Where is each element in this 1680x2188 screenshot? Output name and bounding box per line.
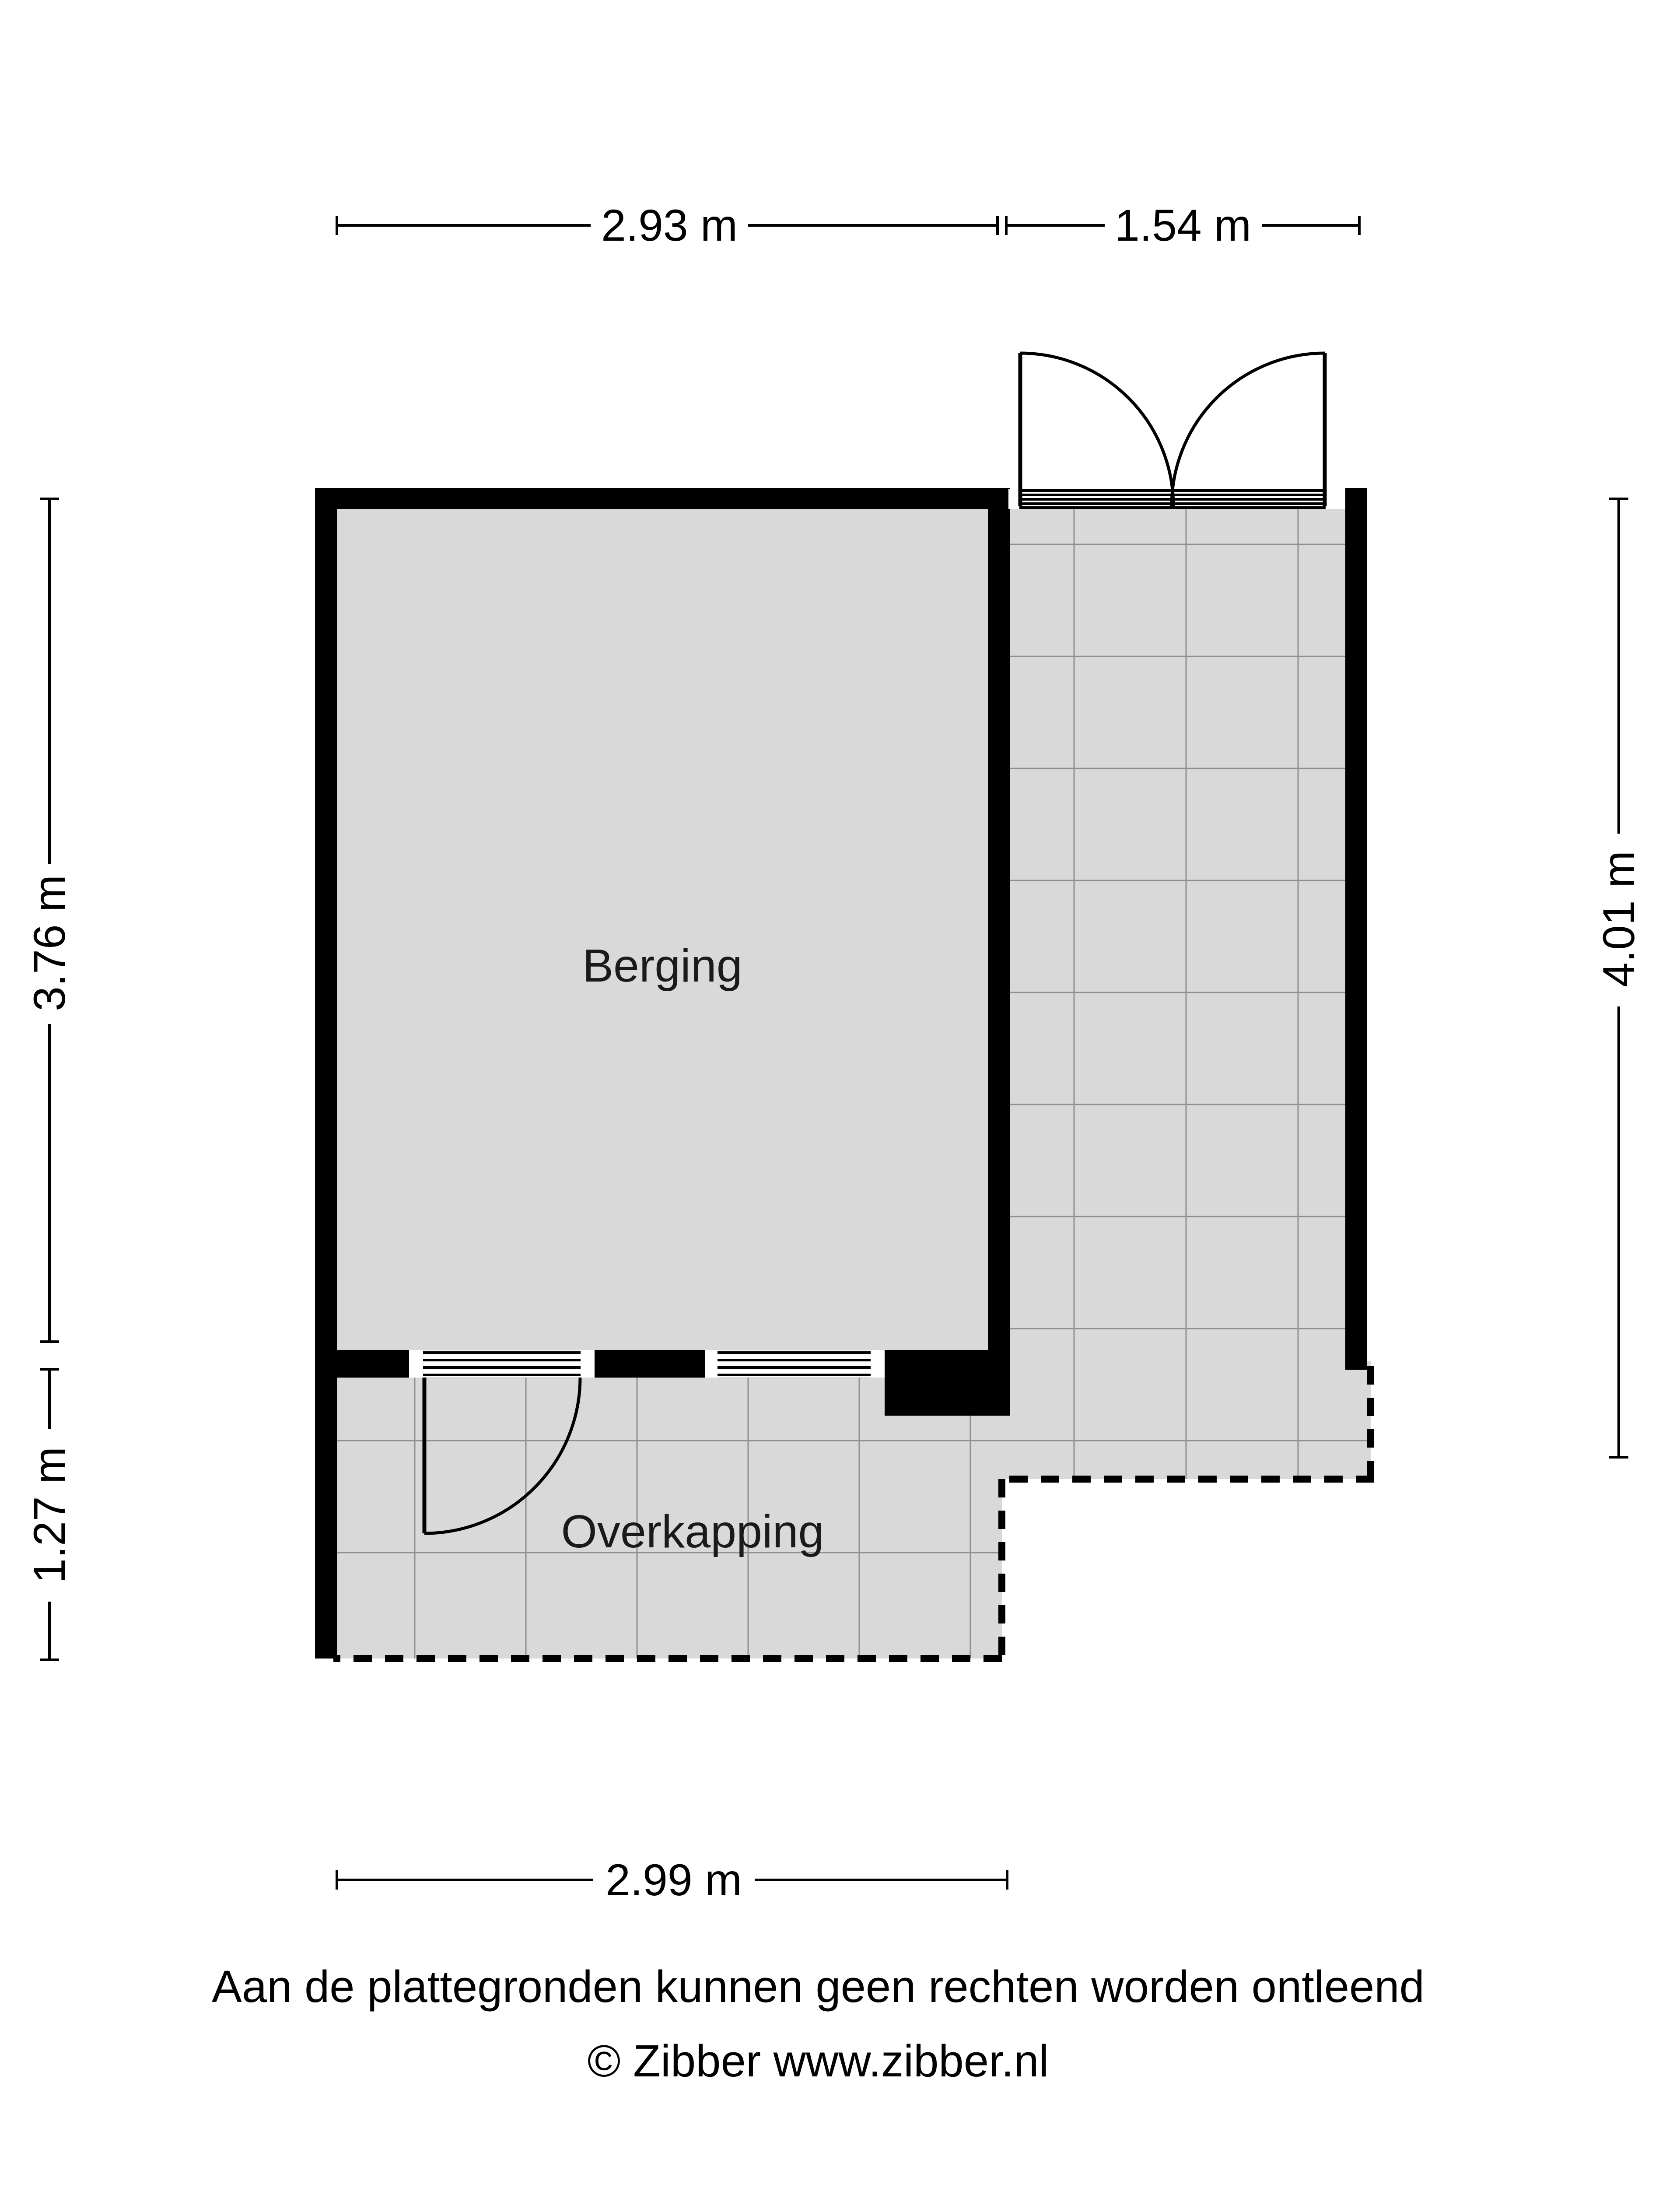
dimension-bottom: 2.99 m (337, 1855, 1007, 1905)
dimension-right: 4.01 m (1594, 499, 1644, 1457)
door-swing-arc-right (1172, 353, 1325, 506)
dimension-label: 3.76 m (24, 875, 74, 1011)
dimension-left-lower: 1.27 m (24, 1369, 74, 1660)
floorplan-svg: Berging Overkapping 2.93 m 1.54 m 3.76 m… (0, 0, 1680, 2188)
wall-top (315, 488, 1008, 509)
jamb-gap (581, 1350, 595, 1378)
double-door-sill (1008, 489, 1345, 509)
dimension-label: 1.54 m (1115, 200, 1251, 250)
wall-berging-right (988, 488, 1010, 1416)
floorplan-page: Berging Overkapping 2.93 m 1.54 m 3.76 m… (0, 0, 1680, 2188)
wall-corridor-right (1345, 488, 1367, 1370)
jamb-gap (409, 1350, 423, 1378)
dimension-top-left: 2.93 m (337, 200, 997, 250)
jamb-gap (705, 1350, 717, 1378)
dimension-label: 2.99 m (605, 1855, 742, 1905)
wall-left (315, 488, 337, 1659)
footer-disclaimer: Aan de plattegronden kunnen geen rechten… (212, 1961, 1424, 2012)
dimension-label: 2.93 m (601, 200, 738, 250)
room-label-overkapping: Overkapping (561, 1506, 824, 1557)
door-swing-arc-left (1020, 353, 1173, 506)
room-label-berging: Berging (582, 940, 742, 992)
jamb-gap (871, 1350, 885, 1378)
footer-copyright: © Zibber www.zibber.nl (588, 2036, 1049, 2086)
dimension-label: 4.01 m (1594, 851, 1644, 987)
window-symbol-right (717, 1350, 871, 1377)
dimension-top-right: 1.54 m (1006, 200, 1359, 250)
dimension-left-upper: 3.76 m (24, 499, 74, 1342)
wall-bottom-a (337, 1350, 409, 1378)
double-door (1020, 353, 1325, 506)
wall-bottom-corner (885, 1350, 1010, 1416)
window-symbol-left (423, 1350, 581, 1377)
wall-bottom-b (595, 1350, 705, 1378)
floor-area (337, 509, 1371, 1659)
dimension-label: 1.27 m (24, 1447, 74, 1583)
